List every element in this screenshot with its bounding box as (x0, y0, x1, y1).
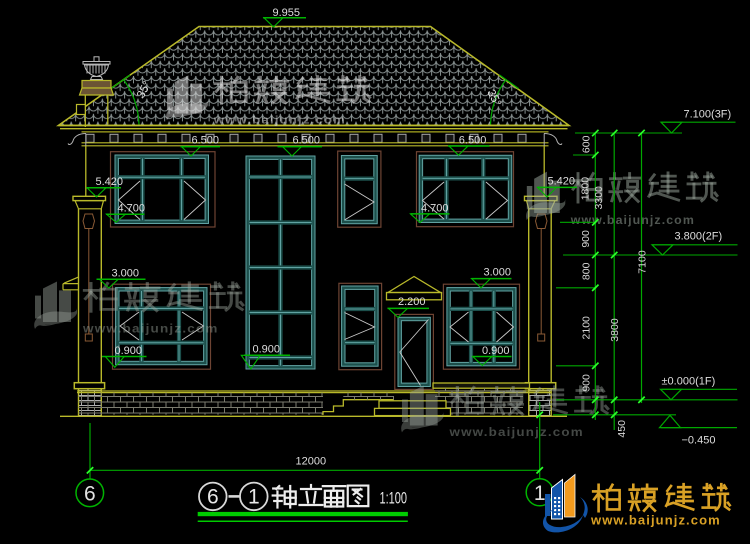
svg-text:0.900: 0.900 (253, 343, 281, 355)
svg-text:6.500: 6.500 (192, 135, 220, 147)
svg-text:6: 6 (207, 486, 219, 509)
svg-text:4.700: 4.700 (421, 203, 449, 215)
svg-text:1:100: 1:100 (380, 489, 408, 508)
svg-text:2.200: 2.200 (398, 296, 426, 308)
svg-text:12000: 12000 (296, 455, 327, 467)
svg-text:900: 900 (581, 374, 593, 392)
svg-text:0.900: 0.900 (115, 345, 143, 357)
svg-text:6.500: 6.500 (459, 135, 487, 147)
svg-text:800: 800 (581, 262, 593, 280)
svg-text:−0.450: −0.450 (682, 435, 716, 447)
svg-text:3.000: 3.000 (484, 267, 512, 279)
svg-text:6: 6 (84, 482, 96, 505)
svg-text:3.800(2F): 3.800(2F) (675, 231, 723, 243)
svg-text:0.900: 0.900 (482, 345, 510, 357)
svg-text:3.000: 3.000 (112, 267, 140, 279)
svg-text:5.420: 5.420 (96, 176, 124, 188)
svg-text:1: 1 (248, 486, 260, 509)
svg-text:1800: 1800 (580, 177, 592, 201)
svg-text:3800: 3800 (609, 318, 621, 342)
svg-text:www.baijunjz.com: www.baijunjz.com (590, 513, 721, 528)
svg-text:900: 900 (580, 230, 592, 248)
svg-text:450: 450 (616, 420, 628, 438)
svg-text:2100: 2100 (581, 316, 593, 340)
svg-text:7100: 7100 (637, 250, 649, 274)
svg-text:1: 1 (534, 482, 546, 505)
svg-text:4.700: 4.700 (118, 202, 146, 214)
svg-text:3300: 3300 (593, 186, 605, 210)
svg-text:600: 600 (581, 135, 593, 153)
svg-text:6.500: 6.500 (293, 135, 321, 147)
svg-text:7.100(3F): 7.100(3F) (684, 109, 732, 121)
svg-text:±0.000(1F): ±0.000(1F) (662, 376, 716, 388)
svg-text:5.420: 5.420 (548, 176, 576, 188)
